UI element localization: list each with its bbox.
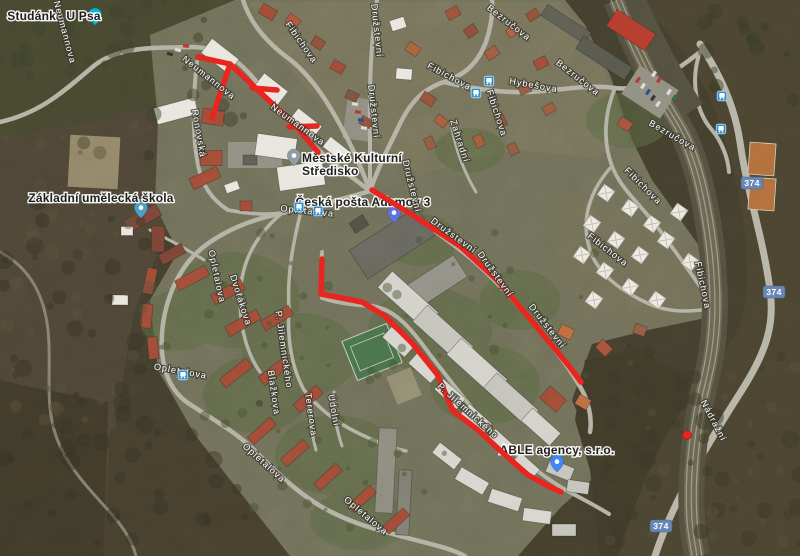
bus-stop-icon[interactable] [484,76,494,86]
map-viewport[interactable]: Studánka U PsaZákladní umělecká školaMěs… [0,0,800,556]
bus-stop-icon[interactable] [717,91,727,101]
route-neumannova-spur-1[interactable] [252,88,277,90]
road-badge-374: 374 [763,286,785,298]
zakladni-umelecka-skola-label[interactable]: Základní umělecká škola [28,191,173,205]
bus-stop-icon[interactable] [178,370,188,380]
bus-stop-icon[interactable] [716,124,726,134]
svg-text:374: 374 [744,178,760,188]
road-badge-374: 374 [741,177,763,189]
able-agency-sro-label[interactable]: ABLE agency, s.r.o. [500,443,615,457]
svg-text:374: 374 [653,521,669,531]
satellite-map[interactable]: Studánka U PsaZákladní umělecká školaMěs… [0,0,800,556]
grain-texture [0,0,800,556]
bus-stop-icon[interactable] [313,206,323,216]
bus-stop-icon[interactable] [471,88,481,98]
road-badge-374: 374 [650,520,672,532]
bus-stop-icon[interactable] [294,202,304,212]
route-point-marker[interactable] [683,431,692,440]
svg-text:374: 374 [766,287,782,297]
